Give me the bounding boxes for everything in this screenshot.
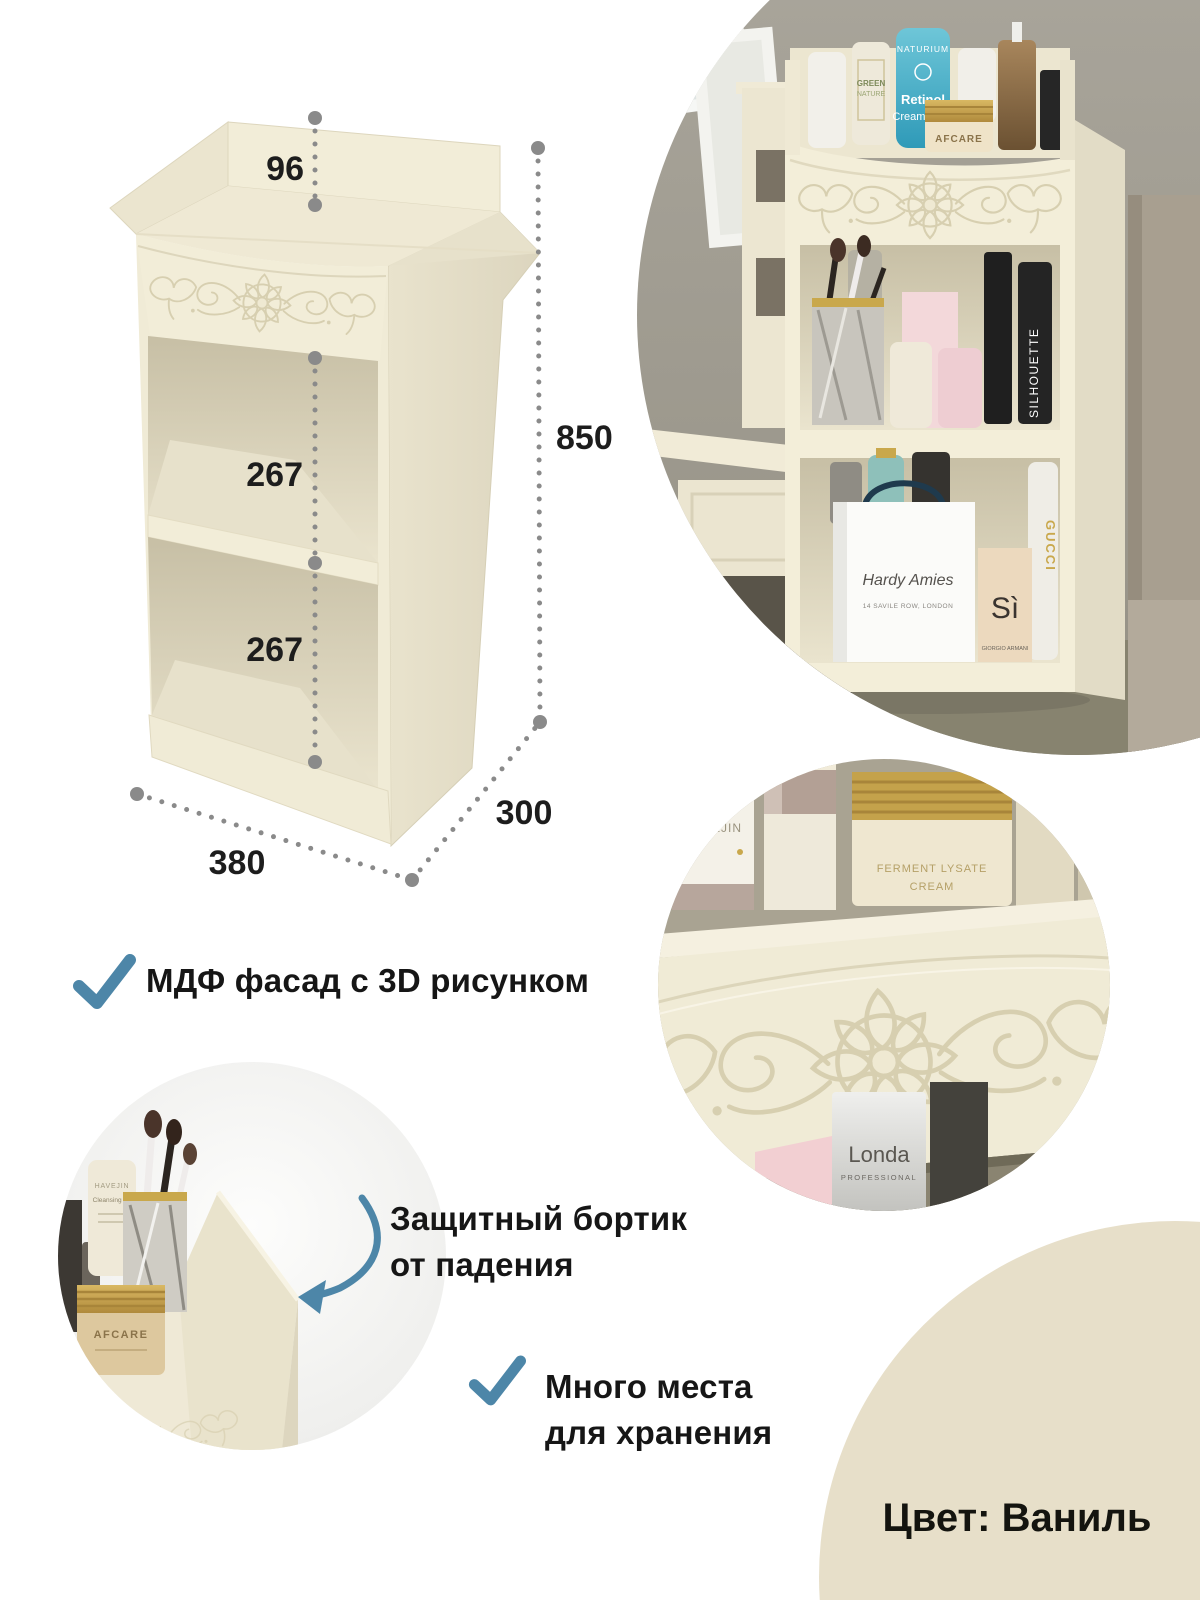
shelf-unit: GREEN NATURE NATURIUM Retinol Cream 2.5%: [770, 22, 1125, 714]
product-infographic: 96 267 267 850 380 300: [0, 0, 1200, 1600]
dimension-300-label: 300: [496, 794, 553, 832]
havejin-brand-label: HAVEJIN: [95, 1183, 130, 1190]
vanilla-color-circle: [819, 1221, 1200, 1600]
jar-label-line2: CREAM: [910, 881, 955, 893]
si-brand-label: GIORGIO ARMANI: [982, 646, 1029, 652]
londa-sub-label: PROFESSIONAL: [841, 1173, 917, 1182]
naturium-brand: NATURIUM: [897, 44, 949, 54]
feature-storage-line1: Много места: [545, 1364, 772, 1410]
green-tube-label1: GREEN: [857, 79, 886, 88]
closeup-products: MAYEJIN FERMENT LYSATE CREAM: [672, 759, 1110, 910]
dimension-96-label: 96: [266, 150, 304, 188]
londa-label: Londa: [848, 1142, 910, 1167]
mayejin-label: MAYEJIN: [684, 821, 742, 835]
afcare-jar: AFCARE: [925, 100, 993, 152]
si-label: Sì: [991, 592, 1019, 625]
dimension-850-label: 850: [556, 419, 613, 457]
silhouette-label: SILHOUETTE: [1027, 328, 1041, 418]
gucci-bottle: GUCCI: [1028, 462, 1058, 660]
furniture-render: [110, 122, 540, 846]
dimension-380-label: 380: [209, 844, 266, 882]
green-tube-label2: NATURE: [857, 91, 886, 98]
sofa: [1128, 195, 1200, 755]
dimension-267-bottom-label: 267: [246, 631, 303, 669]
feature-storage: Много места для хранения: [545, 1364, 772, 1456]
checkmark-icon: [468, 1354, 526, 1406]
color-name-label: Цвет: Ваниль: [850, 1496, 1184, 1541]
dimension-267-top-label: 267: [246, 456, 303, 494]
checkmark-icon: [72, 952, 136, 1010]
feature-protective-rail-line1: Защитный бортик: [390, 1196, 687, 1242]
silhouette-spray: SILHOUETTE: [1018, 262, 1052, 424]
jar-label-line1: FERMENT LYSATE: [877, 863, 988, 875]
cream-jar: FERMENT LYSATE CREAM: [852, 772, 1012, 906]
feature-protective-rail-line2: от падения: [390, 1242, 687, 1288]
feature-mdf-facade: МДФ фасад с 3D рисунком: [146, 958, 589, 1004]
photo-room-scene: GREEN NATURE NATURIUM Retinol Cream 2.5%: [637, 0, 1200, 755]
curved-arrow-icon: [280, 1180, 395, 1320]
photo-carving-closeup: MAYEJIN FERMENT LYSATE CREAM: [658, 759, 1110, 1211]
feature-protective-rail: Защитный бортик от падения: [390, 1196, 687, 1288]
mayejin-bottle: MAYEJIN: [672, 792, 754, 910]
chair: [637, 560, 721, 755]
feature-storage-line2: для хранения: [545, 1410, 772, 1456]
afcare-jar: AFCARE: [77, 1285, 165, 1375]
bag-address-label: 14 SAVILE ROW, LONDON: [863, 603, 954, 610]
dark-bottle: [930, 1082, 988, 1211]
bag-brand-label: Hardy Amies: [863, 572, 954, 589]
gucci-label: GUCCI: [1043, 520, 1058, 572]
paper-bag: Hardy Amies 14 SAVILE ROW, LONDON: [833, 483, 975, 662]
afcare-corner-label: AFCARE: [94, 1329, 149, 1341]
dimension-diagram: 96 267 267 850 380 300: [0, 0, 620, 920]
londa-bottle: Londa PROFESSIONAL: [832, 1092, 926, 1211]
afcare-label: AFCARE: [935, 134, 983, 145]
si-perfume-box: Sì GIORGIO ARMANI: [978, 548, 1032, 662]
